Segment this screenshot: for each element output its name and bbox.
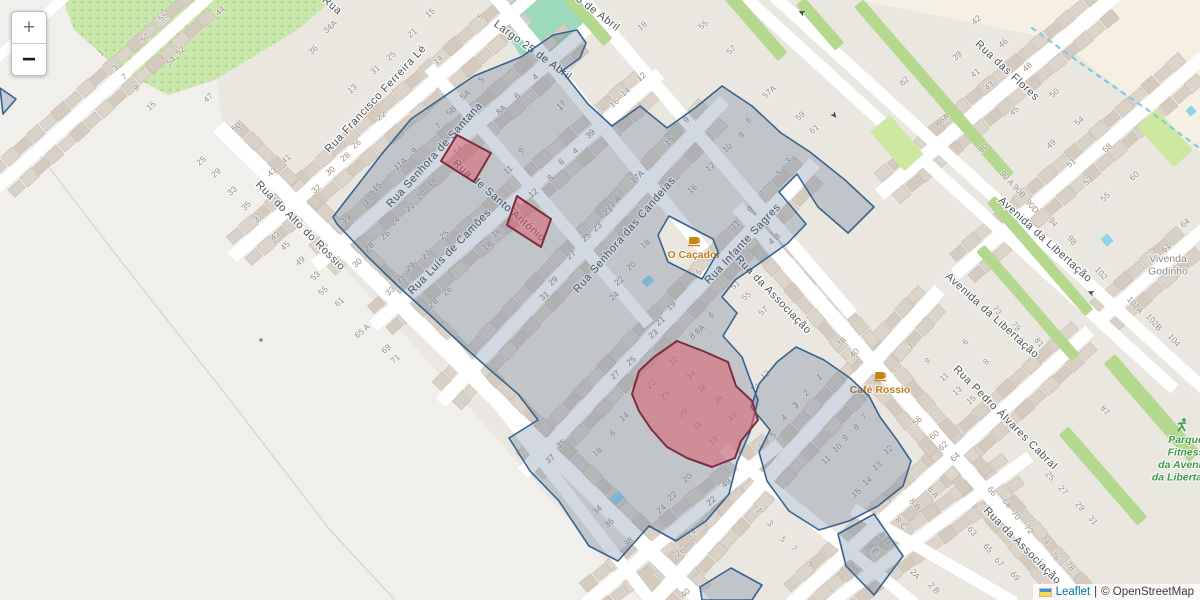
poi-label: Fitness [1168,447,1200,459]
poi-label: da Libertação [1152,472,1200,484]
poi-label: Godinho [1148,266,1188,278]
poi-label: Vivenda [1149,253,1187,265]
zoom-out-button[interactable]: − [12,44,46,75]
openstreetmap-link[interactable]: © OpenStreetMap [1101,586,1194,598]
map-canvas[interactable]: ➤➤➤4455575254137915475034A36211552531141… [0,0,1200,600]
poi-label: Parque [1168,434,1200,446]
poi-label: O Caçador [667,249,720,261]
ukraine-flag-icon [1039,588,1052,597]
zoom-control: + − [11,11,47,76]
poi: VivendaGodinho [1148,253,1188,278]
attribution-bar: Leaflet | © OpenStreetMap [1033,584,1200,600]
map[interactable]: ➤➤➤4455575254137915475034A36211552531141… [0,0,1200,600]
path-node [259,338,263,342]
poi-label: da Avenida [1158,459,1200,471]
leaflet-link[interactable]: Leaflet [1056,586,1091,598]
zoom-in-button[interactable]: + [12,12,46,44]
attribution-separator: | [1094,586,1097,598]
